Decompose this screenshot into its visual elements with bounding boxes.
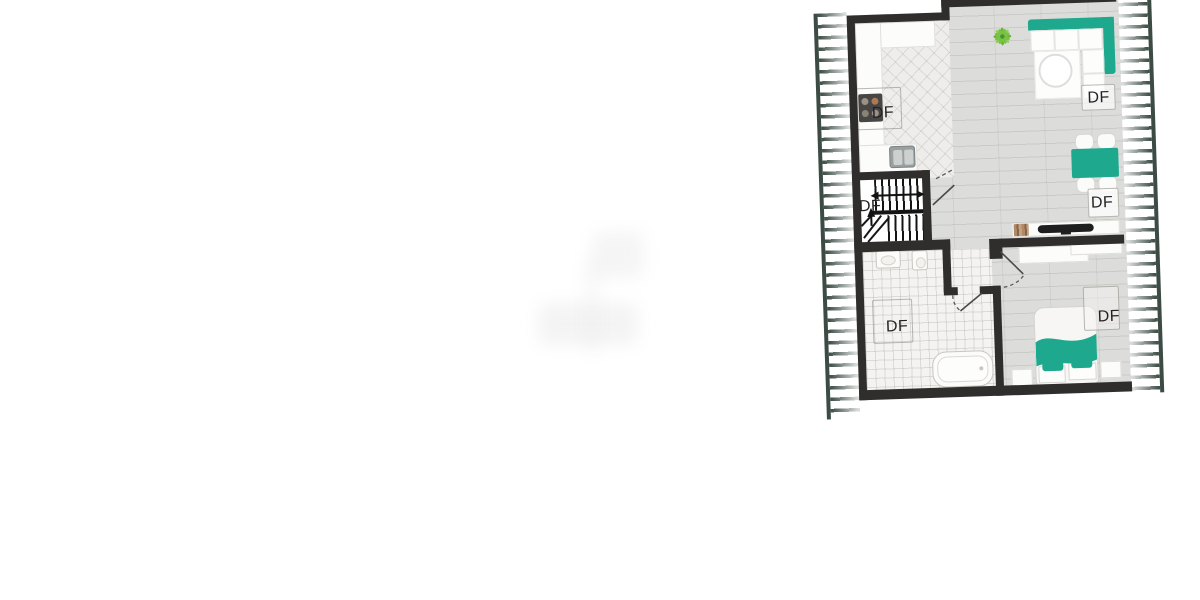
nightstand bbox=[1100, 361, 1122, 379]
dining-table bbox=[1071, 148, 1119, 179]
nightstand bbox=[1011, 369, 1033, 387]
pillow bbox=[1071, 354, 1092, 369]
plant-icon bbox=[991, 25, 1014, 48]
kitchen-sink-icon bbox=[889, 145, 916, 168]
floor-plan-core: DF DF DF DF DF DF bbox=[846, 0, 1132, 422]
wall-bathroom-right bbox=[942, 239, 952, 292]
wall-bathroom-jog bbox=[944, 287, 958, 295]
books-icon bbox=[1014, 224, 1029, 236]
scan-smudge bbox=[584, 258, 600, 353]
skylight-label-stairs: DF bbox=[859, 199, 882, 216]
skylight-label-living: DF bbox=[1087, 90, 1110, 107]
bathroom-sink-icon bbox=[875, 250, 901, 269]
sink-basin bbox=[893, 150, 902, 165]
sofa-cushion bbox=[1054, 29, 1079, 51]
sofa-cushion bbox=[1078, 28, 1103, 50]
staircase-upper-flight bbox=[874, 178, 925, 211]
toilet-icon bbox=[911, 250, 928, 271]
skylight-label-kitchen: DF bbox=[872, 105, 895, 122]
toilet-seat bbox=[916, 257, 926, 268]
sofa-cushion bbox=[1030, 30, 1055, 52]
bathtub-icon bbox=[932, 350, 994, 388]
sofa bbox=[1103, 17, 1116, 74]
sofa-cushion bbox=[1082, 49, 1105, 74]
skylight-label-dining: DF bbox=[1091, 195, 1114, 212]
skylight-label-bathroom: DF bbox=[886, 319, 909, 336]
staircase-lower-flight bbox=[887, 214, 926, 241]
skylight-label-bedroom: DF bbox=[1097, 309, 1120, 326]
sink-basin bbox=[904, 149, 913, 164]
wall-tv-end bbox=[989, 239, 1003, 259]
floor-plan: DF DF DF DF DF DF bbox=[813, 0, 1165, 423]
sink-bowl bbox=[881, 255, 896, 265]
tv-stand bbox=[1061, 231, 1071, 234]
pillow bbox=[1042, 357, 1063, 372]
